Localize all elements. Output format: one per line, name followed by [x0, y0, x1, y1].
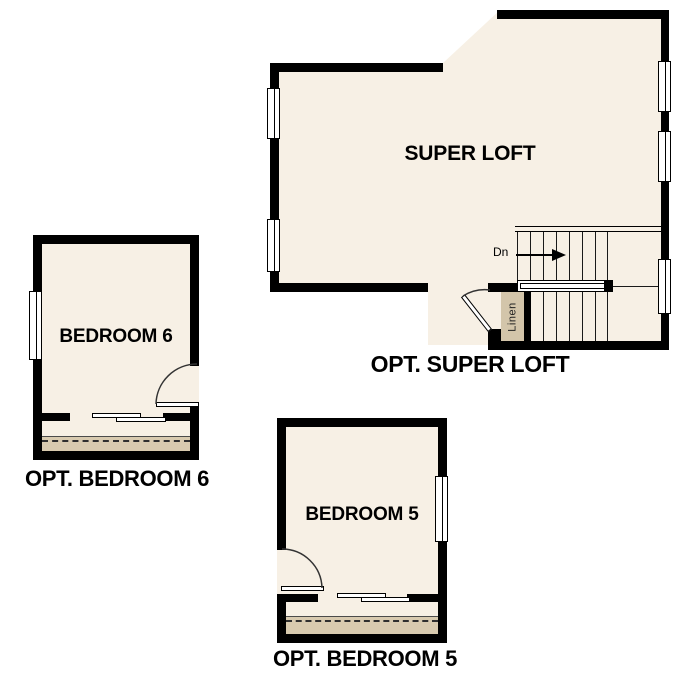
floor-plan-sheet: Dn Linen SUPER LOFT OPT. SUPER LOFT — [0, 0, 687, 687]
room-label-bedroom6: BEDROOM 6 — [16, 326, 216, 348]
caption-opt-bedroom6: OPT. BEDROOM 6 — [0, 466, 237, 492]
room-label-super-loft: SUPER LOFT — [320, 142, 620, 166]
caption-opt-bedroom5: OPT. BEDROOM 5 — [245, 646, 485, 672]
room-label-bedroom5: BEDROOM 5 — [262, 504, 462, 526]
stairs-down-label: Dn — [493, 245, 508, 259]
door-swing-arc — [156, 364, 197, 404]
caption-opt-super-loft: OPT. SUPER LOFT — [320, 351, 620, 378]
door-swing-arc — [282, 549, 322, 588]
door-swing-arc — [463, 290, 490, 296]
